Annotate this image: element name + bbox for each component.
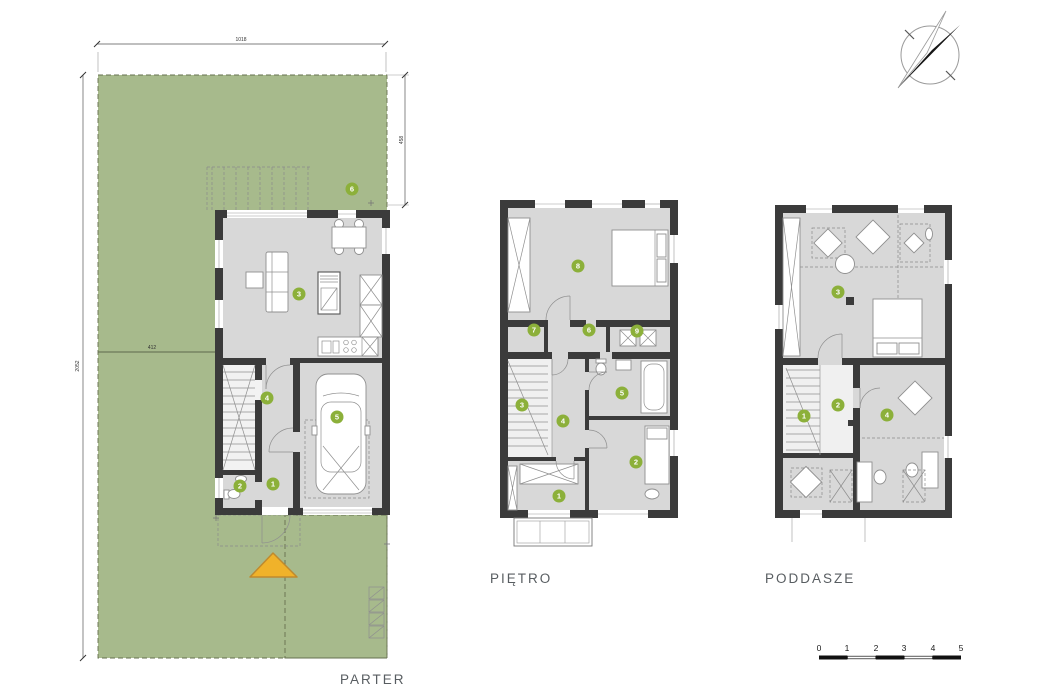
svg-text:6: 6 bbox=[587, 326, 591, 335]
garage-door bbox=[303, 507, 372, 515]
scale-tick: 1 bbox=[845, 643, 850, 653]
room-number-badge: 3 bbox=[293, 288, 306, 301]
dimension-top: 1018 bbox=[94, 37, 388, 72]
north-arrow-compass bbox=[898, 11, 960, 88]
scale-bar: 0 1 2 3 4 5 bbox=[817, 643, 964, 660]
scale-tick: 4 bbox=[931, 643, 936, 653]
floor-plan-pietro: 1 2 3 4 5 6 7 8 9 PIĘTRO bbox=[490, 200, 678, 586]
scale-tick: 3 bbox=[902, 643, 907, 653]
room-number-badge: 4 bbox=[881, 409, 894, 422]
closet bbox=[508, 466, 517, 510]
svg-text:2: 2 bbox=[238, 482, 242, 491]
room-number-badge: 3 bbox=[832, 286, 845, 299]
room-number-badge: 2 bbox=[832, 399, 845, 412]
car bbox=[312, 374, 370, 494]
wardrobe bbox=[520, 464, 578, 484]
svg-text:3: 3 bbox=[297, 290, 301, 299]
room-number-badge: 1 bbox=[553, 490, 566, 503]
room-number-badge: 2 bbox=[630, 456, 643, 469]
svg-text:1: 1 bbox=[557, 492, 561, 501]
door-opening bbox=[818, 358, 842, 365]
double-bed bbox=[612, 230, 668, 286]
svg-text:7: 7 bbox=[532, 326, 536, 335]
room-number-badge: 3 bbox=[516, 399, 529, 412]
chimney bbox=[846, 297, 854, 305]
svg-text:8: 8 bbox=[576, 262, 580, 271]
sofa bbox=[266, 252, 288, 312]
kitchen-island bbox=[318, 272, 340, 314]
svg-text:9: 9 bbox=[635, 327, 639, 336]
chair bbox=[645, 489, 659, 499]
chimney bbox=[848, 420, 854, 426]
room-number-badge: 5 bbox=[331, 411, 344, 424]
svg-text:3: 3 bbox=[520, 401, 524, 410]
svg-text:412: 412 bbox=[148, 345, 157, 351]
svg-text:5: 5 bbox=[620, 389, 624, 398]
pietro-label: PIĘTRO bbox=[490, 571, 552, 586]
svg-text:2: 2 bbox=[634, 458, 638, 467]
room-number-badge: 1 bbox=[798, 410, 811, 423]
bath-sink bbox=[616, 360, 631, 370]
dimension-right: 458 bbox=[388, 72, 409, 208]
room-number-badge: 1 bbox=[267, 478, 280, 491]
wardrobe bbox=[508, 218, 530, 312]
round-table bbox=[836, 255, 855, 274]
compass-needle-white bbox=[898, 11, 946, 88]
single-bed bbox=[645, 426, 669, 484]
coffee-table bbox=[246, 272, 263, 288]
room-number-badge: 7 bbox=[528, 324, 541, 337]
extension-lines bbox=[792, 518, 865, 542]
svg-text:3: 3 bbox=[836, 288, 840, 297]
room-number-badge: 6 bbox=[346, 183, 359, 196]
corridor-6 bbox=[548, 327, 606, 352]
poddasze-label: PODDASZE bbox=[765, 571, 855, 586]
kitchen-counter bbox=[318, 337, 378, 356]
room-number-badge: 4 bbox=[261, 392, 274, 405]
svg-text:1: 1 bbox=[271, 480, 275, 489]
room-number-badge: 4 bbox=[557, 415, 570, 428]
svg-text:1018: 1018 bbox=[235, 37, 246, 43]
wardrobe bbox=[783, 218, 800, 356]
dimension-left: 2052 bbox=[75, 72, 86, 661]
balcony bbox=[514, 518, 592, 546]
svg-text:458: 458 bbox=[399, 136, 405, 145]
svg-text:2: 2 bbox=[836, 401, 840, 410]
svg-text:2052: 2052 bbox=[75, 360, 81, 371]
toilet bbox=[596, 359, 606, 375]
svg-text:5: 5 bbox=[335, 413, 339, 422]
room-number-badge: 5 bbox=[616, 387, 629, 400]
kitchen-tall-cabinets bbox=[360, 275, 382, 337]
floor-plan-poddasze: 1 2 3 4 PODDASZE bbox=[765, 205, 952, 586]
svg-text:1: 1 bbox=[802, 412, 806, 421]
scale-tick: 2 bbox=[874, 643, 879, 653]
floor-plan-sheet: 412 1018 2052 bbox=[0, 0, 1040, 699]
door-opening bbox=[853, 388, 860, 408]
svg-text:6: 6 bbox=[350, 185, 354, 194]
bathtub bbox=[641, 361, 667, 413]
scale-tick: 0 bbox=[817, 643, 822, 653]
interior-wall bbox=[783, 453, 853, 458]
parter-label: PARTER bbox=[340, 672, 406, 687]
room-number-badge: 2 bbox=[234, 480, 247, 493]
scale-tick: 5 bbox=[959, 643, 964, 653]
room-number-badge: 6 bbox=[583, 324, 596, 337]
room-number-badge: 9 bbox=[631, 325, 644, 338]
room-number-badge: 8 bbox=[572, 260, 585, 273]
double-bed bbox=[873, 299, 922, 357]
